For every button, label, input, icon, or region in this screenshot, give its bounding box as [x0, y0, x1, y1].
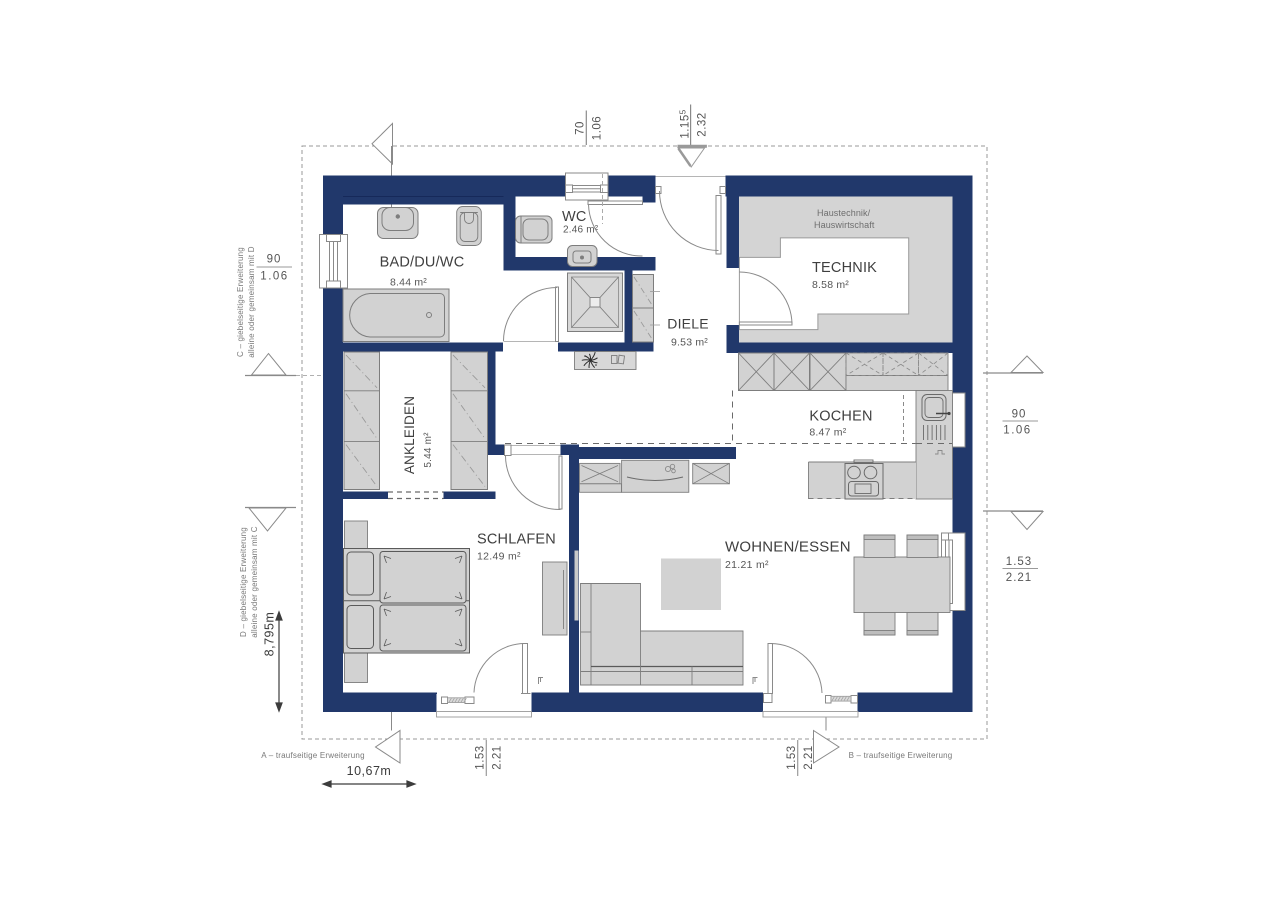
svg-text:A – traufseitige Erweiterung: A – traufseitige Erweiterung — [261, 751, 364, 760]
svg-text:C – giebelseitige Erweiterung: C – giebelseitige Erweiterung — [236, 247, 245, 357]
svg-text:D – giebelseitige Erweiterung: D – giebelseitige Erweiterung — [239, 527, 248, 637]
svg-text:2.21: 2.21 — [803, 745, 815, 769]
svg-text:B – traufseitige Erweiterung: B – traufseitige Erweiterung — [849, 751, 953, 760]
svg-text:1.06: 1.06 — [592, 116, 604, 140]
svg-text:1.53: 1.53 — [786, 745, 798, 769]
svg-text:8.47 m²: 8.47 m² — [809, 427, 846, 439]
svg-text:Hauswirtschaft: Hauswirtschaft — [814, 220, 875, 230]
svg-text:8.58 m²: 8.58 m² — [812, 279, 849, 291]
svg-text:1.53: 1.53 — [1006, 556, 1032, 568]
svg-text:8,795m: 8,795m — [263, 612, 277, 657]
svg-text:ANKLEIDEN: ANKLEIDEN — [402, 396, 417, 474]
svg-text:KOCHEN: KOCHEN — [809, 409, 872, 425]
svg-text:2.32: 2.32 — [697, 112, 709, 136]
svg-text:2.21: 2.21 — [492, 745, 504, 769]
svg-text:21.21 m²: 21.21 m² — [725, 559, 769, 571]
svg-text:Haustechnik/: Haustechnik/ — [817, 208, 871, 218]
svg-text:9.53 m²: 9.53 m² — [671, 337, 708, 349]
svg-text:DIELE: DIELE — [667, 316, 708, 332]
svg-text:5.44 m²: 5.44 m² — [423, 432, 434, 468]
svg-text:alleine oder gemeinsam mit D: alleine oder gemeinsam mit D — [247, 246, 256, 357]
svg-text:2.21: 2.21 — [1006, 572, 1032, 584]
svg-text:alleine oder gemeinsam mit C: alleine oder gemeinsam mit C — [250, 526, 259, 637]
svg-text:10,67m: 10,67m — [347, 764, 392, 778]
svg-text:1.06: 1.06 — [260, 271, 288, 283]
svg-text:90: 90 — [267, 254, 282, 266]
svg-text:70: 70 — [575, 121, 587, 135]
svg-text:12.49 m²: 12.49 m² — [477, 551, 521, 563]
svg-text:8.44 m²: 8.44 m² — [390, 277, 427, 289]
svg-text:SCHLAFEN: SCHLAFEN — [477, 532, 556, 548]
svg-text:BAD/DU/WC: BAD/DU/WC — [380, 255, 465, 271]
svg-text:90: 90 — [1012, 409, 1027, 421]
svg-text:WC: WC — [562, 209, 587, 225]
svg-text:1.53: 1.53 — [475, 745, 487, 769]
svg-text:1.06: 1.06 — [1003, 425, 1031, 437]
svg-text:WOHNEN/ESSEN: WOHNEN/ESSEN — [725, 539, 851, 556]
svg-text:TECHNIK: TECHNIK — [812, 260, 877, 276]
